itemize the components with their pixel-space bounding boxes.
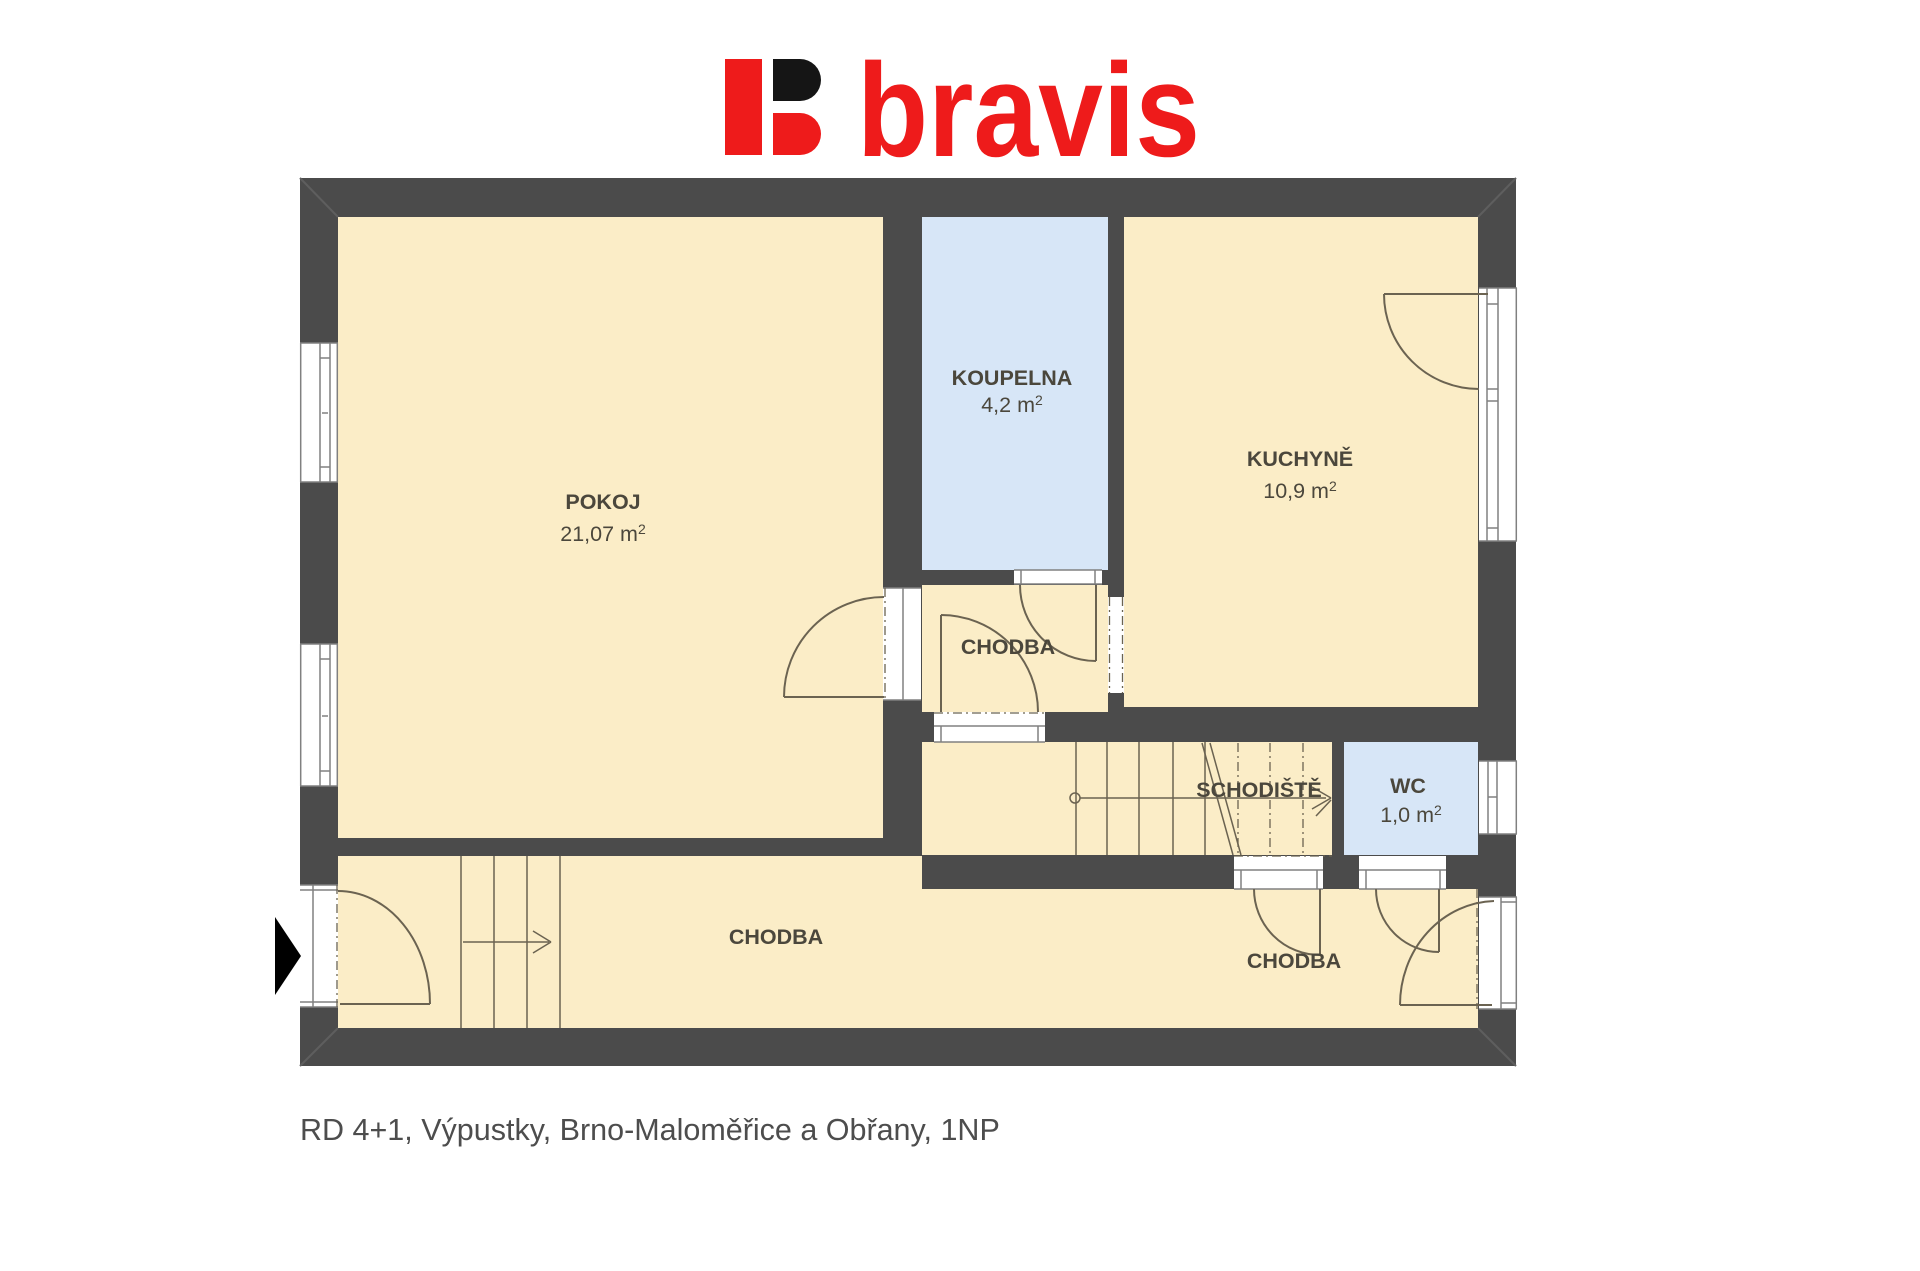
svg-text:KOUPELNA: KOUPELNA bbox=[952, 366, 1073, 390]
svg-text:bravis: bravis bbox=[857, 37, 1200, 185]
svg-text:4,2 m2: 4,2 m2 bbox=[981, 392, 1043, 417]
svg-text:CHODBA: CHODBA bbox=[961, 635, 1055, 659]
svg-text:SCHODIŠTĚ: SCHODIŠTĚ bbox=[1196, 777, 1321, 802]
svg-text:WC: WC bbox=[1390, 774, 1426, 798]
svg-text:POKOJ: POKOJ bbox=[565, 490, 640, 514]
svg-text:10,9 m2: 10,9 m2 bbox=[1263, 478, 1337, 503]
svg-text:KUCHYNĚ: KUCHYNĚ bbox=[1247, 446, 1353, 471]
svg-text:21,07 m2: 21,07 m2 bbox=[560, 521, 646, 546]
svg-text:CHODBA: CHODBA bbox=[729, 925, 823, 949]
svg-text:CHODBA: CHODBA bbox=[1247, 949, 1341, 973]
svg-text:RD 4+1, Výpustky, Brno-Maloměř: RD 4+1, Výpustky, Brno-Maloměřice a Obřa… bbox=[300, 1113, 1000, 1147]
svg-text:1,0 m2: 1,0 m2 bbox=[1380, 802, 1442, 827]
